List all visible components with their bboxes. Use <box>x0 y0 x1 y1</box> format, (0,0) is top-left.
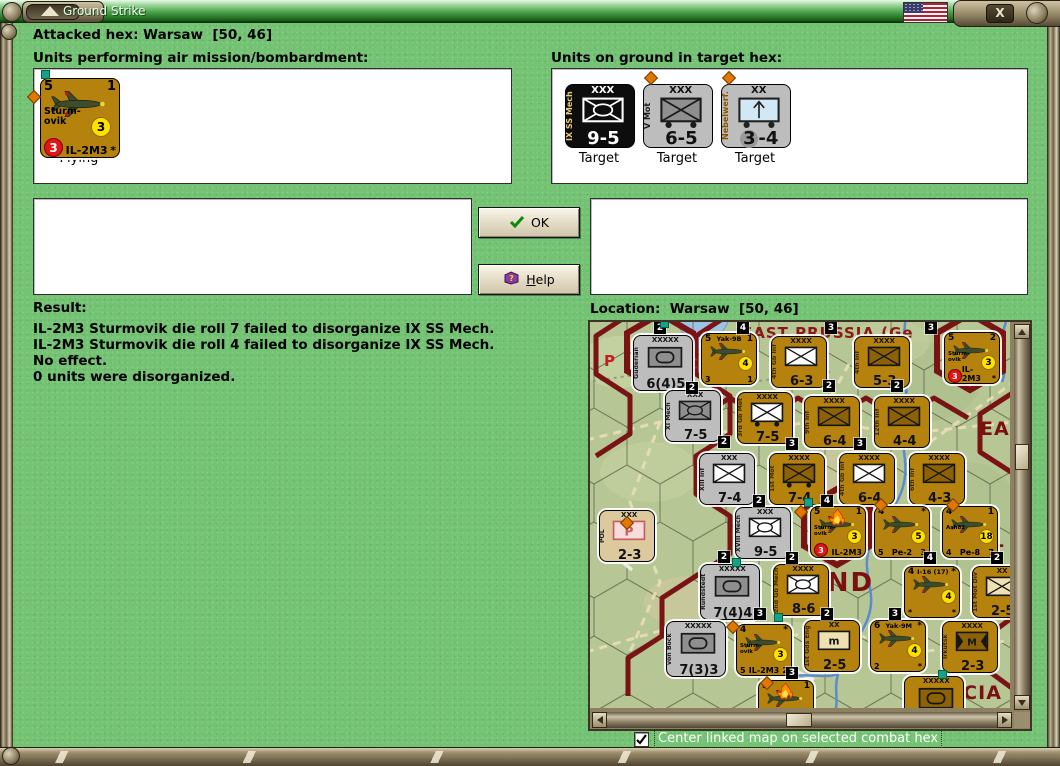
fire-icon <box>829 509 846 532</box>
right-empty-panel <box>590 198 1028 295</box>
air-panel-label: Units performing air mission/bombardment… <box>33 50 368 66</box>
unit-size-label: XX <box>978 567 1010 575</box>
result-line: No effect. <box>33 353 494 369</box>
unit-strength-value: 7-5 <box>743 430 792 445</box>
bottom-border <box>0 747 1060 766</box>
unit-strength-value: 7-5 <box>671 428 720 443</box>
map-unit-counter[interactable]: XXXX12th Inf4-4 <box>874 396 930 448</box>
unit-size-label: XXXXX <box>640 336 691 344</box>
unit-symbol-icon <box>711 462 747 492</box>
target-status-label: Target <box>565 151 633 166</box>
unit-size-label: XXXX <box>777 337 825 345</box>
objective-marker <box>938 670 947 679</box>
unit-size-label: XX <box>810 621 858 629</box>
map-unit-counter[interactable]: XXXX4th Gb Inf6-3 <box>771 336 827 388</box>
unit-size-label: XXX <box>741 508 789 516</box>
stack-count-badge: 3 <box>925 322 937 334</box>
scroll-up-button[interactable] <box>1014 324 1030 339</box>
stack-count-badge: 3 <box>786 667 798 679</box>
unit-strength-value: 6-3 <box>777 374 826 389</box>
stack-count-badge: 3 <box>786 438 798 450</box>
unit-symbol-icon <box>781 462 817 492</box>
center-map-row: Center linked map on selected combat hex <box>634 730 942 748</box>
map-unit-counter[interactable]: XXXX4th Gb Inf6-4 <box>839 453 895 505</box>
map-frame: EAST PRUSSIA (GePCOIistrsaLANDEAst-LICIA… <box>588 320 1032 731</box>
unit-size-label: XXXX <box>860 337 908 345</box>
unit-size-label: XXXX <box>775 454 823 462</box>
close-button[interactable]: X <box>986 4 1014 23</box>
unit-strength-value: 9-5 <box>573 128 634 149</box>
svg-text:M: M <box>967 637 977 648</box>
experience-badge: 4 <box>907 643 922 658</box>
title-knob-icon <box>1026 2 1048 24</box>
map-h-scrollbar[interactable] <box>592 712 1012 728</box>
up-arrow-icon <box>1018 329 1026 335</box>
stack-count-badge: 3 <box>854 438 866 450</box>
result-lines: IL-2M3 Sturmovik die roll 7 failed to di… <box>33 321 494 385</box>
unit-symbol-icon <box>851 462 887 492</box>
stack-count-badge: 4 <box>924 552 936 564</box>
air-unit-counter[interactable]: 51 Sturm-ovik33IL-2M3 <box>810 506 866 558</box>
unit-symbol-icon <box>866 345 902 375</box>
air-counter-bottom: 3IL-2M3* <box>44 138 116 157</box>
experience-badge: 3 <box>847 529 862 544</box>
map-unit-counter[interactable]: XXXX3rd Gb Mot7-5 <box>737 392 793 444</box>
air-counter-bottom: ** <box>908 608 956 617</box>
unit-symbol-icon <box>921 462 957 492</box>
unit-symbol-icon <box>747 516 783 546</box>
objective-marker <box>660 322 669 328</box>
experience-badge: 4 <box>941 589 956 604</box>
unit-symbol-icon <box>646 345 684 377</box>
unit-strength-value: 2-5 <box>810 658 859 673</box>
ground-unit-counter[interactable]: XXXV Mot6-5 <box>643 84 713 148</box>
stack-count-badge: 3 <box>825 322 837 334</box>
air-unit-counter[interactable]: 41 Ash82184Pe-87 <box>942 506 998 558</box>
linked-map[interactable]: EAST PRUSSIA (GePCOIistrsaLANDEAst-LICIA… <box>590 322 1010 708</box>
scroll-right-button[interactable] <box>997 712 1012 728</box>
left-empty-panel <box>33 198 472 295</box>
unit-symbol-icon <box>917 686 955 708</box>
target-status-label: Target <box>721 151 789 166</box>
air-unit-counter[interactable]: 6Yak-9M* 42* <box>870 620 926 672</box>
svg-text:?: ? <box>509 274 514 283</box>
map-place-label: EA <box>980 418 1010 440</box>
result-label: Result: <box>33 300 87 316</box>
aircraft-name-label: Sturm-ovik <box>740 644 761 656</box>
aircraft-name-label: Ash82 <box>946 526 965 532</box>
air-unit-counter[interactable]: 4* Sturm-ovik35IL-2M32 <box>736 624 792 676</box>
window-title: Ground Strike <box>63 4 145 18</box>
stack-count-badge: 2 <box>786 552 798 564</box>
map-location-heading: Location: Warsaw [50, 46] <box>590 301 799 317</box>
air-counter-bottom: 5IL-2M32 <box>740 666 788 675</box>
unit-strength-value: 7-4 <box>705 491 754 506</box>
scrollbar-corner <box>1014 712 1030 728</box>
map-unit-counter[interactable]: XXXXI Mech7-5 <box>665 390 721 442</box>
target-status-label: Target <box>643 151 711 166</box>
help-button-label: Help <box>526 272 555 287</box>
unit-symbol-icon <box>816 405 852 435</box>
left-border <box>0 22 13 748</box>
result-line: IL-2M3 Sturmovik die roll 4 failed to di… <box>33 337 494 353</box>
objective-marker <box>774 613 783 622</box>
map-place-label: P <box>604 352 615 370</box>
unit-strength-value: 2-5 <box>978 604 1010 619</box>
unit-symbol-icon <box>679 631 717 663</box>
unit-size-label: XXXX <box>880 397 928 405</box>
air-counter-bottom: 4Pe-87 <box>946 548 994 557</box>
stack-count-badge: 2 <box>891 380 903 392</box>
air-unit-counter[interactable]: 52 Sturm-ovik33IL-2M3* <box>944 332 1000 384</box>
unit-size-label: XXXXX <box>673 622 724 630</box>
aircraft-name-label: Sturm-ovik <box>948 352 969 364</box>
unit-symbol-icon <box>580 95 626 132</box>
stack-count-badge: 3 <box>889 608 901 620</box>
unit-strength-value: 4-4 <box>880 434 929 449</box>
air-counter-bottom: 31 <box>705 375 753 384</box>
experience-badge: 18 <box>979 529 994 544</box>
ground-panel-label: Units on ground in target hex: <box>551 50 782 66</box>
air-unit-counter[interactable]: 51 Sturm-ovik33IL-2M3* <box>40 78 120 158</box>
unit-symbol-icon: M <box>954 630 990 660</box>
map-unit-counter[interactable]: XXXX9th Inf6-4 <box>804 396 860 448</box>
map-unit-counter[interactable]: XXXXIII Inf7-4 <box>699 453 755 505</box>
stack-count-badge: 2 <box>753 495 765 507</box>
unit-symbol-icon <box>749 401 785 431</box>
stack-count-badge: 2 <box>823 380 835 392</box>
right-border <box>1047 22 1060 748</box>
map-unit-counter[interactable]: XXXX1st Mot7-4 <box>769 453 825 505</box>
experience-badge: 3 <box>91 117 111 137</box>
stack-count-badge: 3 <box>754 608 766 620</box>
air-unit-counter[interactable]: 4I-16 (17)* 4** <box>904 566 960 618</box>
unit-symbol-icon <box>785 573 821 603</box>
map-unit-counter[interactable]: XXXXXRundstedt7(4)4 <box>700 564 760 620</box>
title-bar: Ground Strike X <box>0 0 1060 23</box>
us-flag-icon <box>903 2 948 23</box>
book-icon: ? <box>503 271 520 288</box>
unit-size-label: XXXX <box>779 565 827 573</box>
unit-strength-value: 7(4)4 <box>707 606 759 621</box>
down-arrow-icon <box>1018 700 1026 706</box>
ok-button[interactable]: OK <box>478 207 580 238</box>
unit-size-label: XXXX <box>915 454 963 462</box>
air-counter-bottom: 3IL-2M3 <box>814 543 862 557</box>
unit-size-label: XXXXX <box>911 677 962 685</box>
experience-badge: 5 <box>911 529 926 544</box>
map-unit-counter[interactable]: XX1st Mot Div2-5 <box>972 566 1010 618</box>
unit-strength-value: 7-4 <box>775 491 824 506</box>
ground-strike-window: Ground Strike X Attacked hex: Warsaw [50… <box>0 0 1060 766</box>
unit-symbol-icon <box>658 95 704 132</box>
map-unit-counter[interactable]: XXXXXvon Bock7(3)3 <box>666 621 726 677</box>
stack-count-badge: 4 <box>737 322 749 334</box>
unit-strength-value: 9-5 <box>741 545 790 560</box>
fire-icon <box>777 683 794 706</box>
unit-strength-value: 2-3 <box>948 659 997 674</box>
check-icon <box>509 215 525 231</box>
aircraft-name-label: Sturm-ovik <box>44 107 81 127</box>
unit-strength-value: 7(3)3 <box>673 663 725 678</box>
svg-text:m: m <box>829 635 840 647</box>
air-counter-bottom: 3IL-2M3* <box>948 365 996 383</box>
map-unit-counter[interactable]: XX1st Gds Engm2-5 <box>804 620 860 672</box>
bottom-left-knob-icon <box>2 747 20 765</box>
unit-size-label: XXXX <box>845 454 893 462</box>
unit-strength-value: 6-4 <box>810 434 859 449</box>
left-column-knob-icon <box>1 24 17 40</box>
unit-symbol-icon <box>677 399 713 429</box>
attacked-hex-heading: Attacked hex: Warsaw [50, 46] <box>33 27 272 43</box>
air-unit-counter[interactable]: 4* 55Pe-23 <box>874 506 930 558</box>
scroll-left-button[interactable] <box>592 712 607 728</box>
unit-symbol-icon <box>984 575 1010 605</box>
unit-size-label: XXXX <box>948 622 996 630</box>
map-unit-counter[interactable]: XXXXX <box>904 676 964 708</box>
unit-symbol-icon <box>783 345 819 375</box>
stack-count-badge: 2 <box>821 608 833 620</box>
objective-marker <box>41 70 50 79</box>
h-scrollbar-thumb[interactable] <box>786 713 812 727</box>
window-knob-icon <box>2 2 22 22</box>
experience-badge: 3 <box>773 647 788 662</box>
result-line: 0 units were disorganized. <box>33 369 494 385</box>
stack-count-badge: 2 <box>991 552 1003 564</box>
air-unit-counter[interactable]: 5Yak-9B1 431 <box>701 333 757 385</box>
restore-icon <box>41 6 59 16</box>
scroll-down-button[interactable] <box>1014 695 1030 710</box>
stack-count-badge: 2 <box>718 436 730 448</box>
stack-count-badge: 2 <box>718 551 730 563</box>
help-button[interactable]: ? Help <box>478 264 580 295</box>
unit-symbol-icon <box>886 405 922 435</box>
objective-marker <box>804 498 813 507</box>
center-map-checkbox[interactable] <box>634 732 649 747</box>
unit-symbol-icon: m <box>816 629 852 659</box>
unit-size-label: XXX <box>705 454 753 462</box>
ok-button-label: OK <box>531 215 549 230</box>
air-counter-bottom: 5Pe-23 <box>878 548 926 557</box>
unit-strength-value: 3-4 <box>729 128 790 149</box>
experience-badge: 4 <box>738 356 753 371</box>
ground-unit-counter[interactable]: XXXIX SS Mech9-5 <box>565 84 635 148</box>
v-scrollbar-thumb[interactable] <box>1015 444 1029 470</box>
objective-marker <box>732 558 741 567</box>
air-counter-bottom: 2* <box>874 662 922 671</box>
ground-unit-counter[interactable]: XXNebelwerf.3-4 <box>721 84 791 148</box>
map-unit-counter[interactable]: XXXXIrkutskM2-3 <box>942 621 998 673</box>
unit-strength-value: 6-5 <box>651 128 712 149</box>
unit-symbol-icon <box>713 574 751 606</box>
unit-size-label: XXXX <box>743 393 791 401</box>
center-map-label[interactable]: Center linked map on selected combat hex <box>654 730 942 748</box>
map-unit-counter[interactable]: XXXXVIII Mech9-5 <box>735 507 791 559</box>
left-arrow-icon <box>597 716 603 724</box>
stack-count-badge: 4 <box>821 495 833 507</box>
unit-symbol-icon <box>736 95 782 132</box>
map-unit-counter[interactable]: XXXXXGuderian6(4)5 <box>633 335 693 391</box>
unit-strength-value: 2-3 <box>605 548 654 563</box>
map-v-scrollbar[interactable] <box>1014 324 1030 710</box>
map-unit-counter[interactable]: XXXX6th Inf4-3 <box>909 453 965 505</box>
unit-size-label: XXXX <box>810 397 858 405</box>
right-arrow-icon <box>1002 716 1008 724</box>
result-line: IL-2M3 Sturmovik die roll 7 failed to di… <box>33 321 494 337</box>
stack-count-badge: 2 <box>686 382 698 394</box>
